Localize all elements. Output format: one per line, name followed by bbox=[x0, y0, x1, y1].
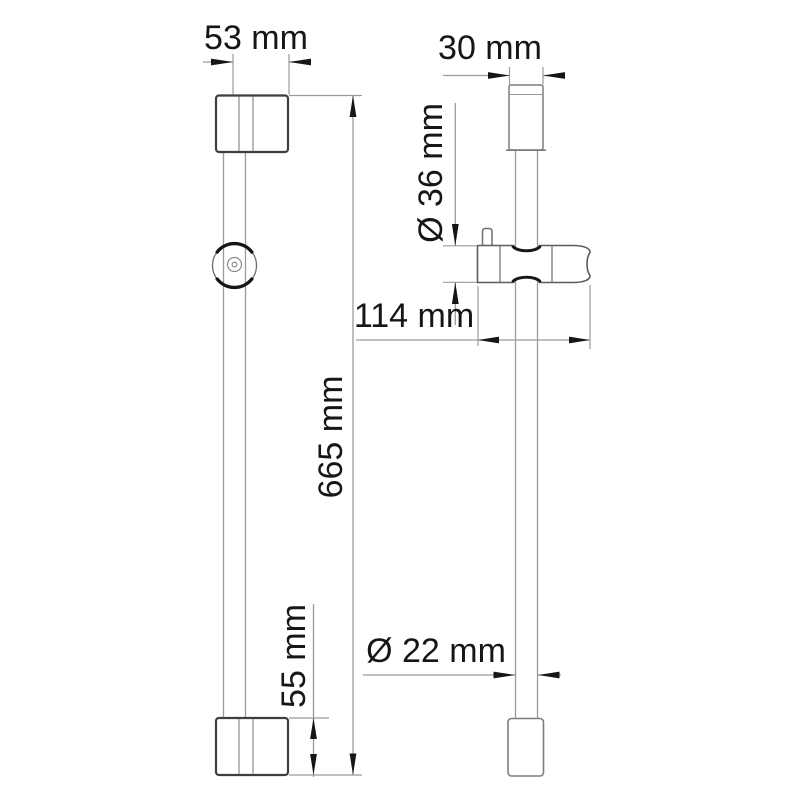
arrowhead bbox=[289, 59, 311, 66]
arrowhead bbox=[350, 754, 357, 776]
dim-53mm bbox=[203, 54, 311, 95]
line-art bbox=[0, 0, 800, 800]
knob-grip-arc-top bbox=[217, 244, 252, 252]
arrowhead bbox=[569, 337, 590, 344]
arrowhead bbox=[538, 672, 560, 679]
slider-knob bbox=[213, 244, 257, 288]
arrowhead bbox=[543, 72, 565, 79]
holder-clamp-arc-top bbox=[513, 246, 541, 251]
dim-30mm bbox=[443, 67, 565, 85]
holder-release-pin bbox=[483, 229, 493, 246]
dim-22mm bbox=[363, 672, 561, 679]
dim-label-36mm: Ø 36 mm bbox=[411, 98, 451, 248]
arrowhead bbox=[478, 337, 499, 344]
dim-label-53mm: 53 mm bbox=[176, 18, 336, 58]
dim-label-114mm: 114 mm bbox=[334, 296, 494, 336]
knob-grip-arc-bottom bbox=[217, 279, 252, 287]
dim-label-30mm: 30 mm bbox=[410, 28, 570, 68]
arrowhead bbox=[494, 672, 516, 679]
dim-label-665mm: 665 mm bbox=[311, 367, 351, 507]
arrowhead bbox=[488, 72, 510, 79]
arrowhead bbox=[350, 96, 357, 118]
arrowhead bbox=[310, 718, 317, 739]
knob-center-dot bbox=[232, 262, 237, 267]
knob-inner-ring bbox=[228, 258, 242, 272]
top-wall-bracket bbox=[216, 96, 288, 153]
arrowhead bbox=[310, 754, 317, 775]
dim-label-22mm: Ø 22 mm bbox=[351, 631, 521, 671]
arrowhead bbox=[452, 224, 459, 246]
side-bottom-cap bbox=[508, 719, 544, 777]
technical-drawing-canvas: 53 mm 30 mm Ø 36 mm 114 mm 665 mm 55 mm … bbox=[0, 0, 800, 800]
holder-clamp-arc-bottom bbox=[513, 277, 541, 282]
dim-label-55mm: 55 mm bbox=[274, 596, 314, 716]
arrowhead bbox=[211, 59, 233, 66]
bottom-wall-bracket bbox=[216, 718, 288, 775]
